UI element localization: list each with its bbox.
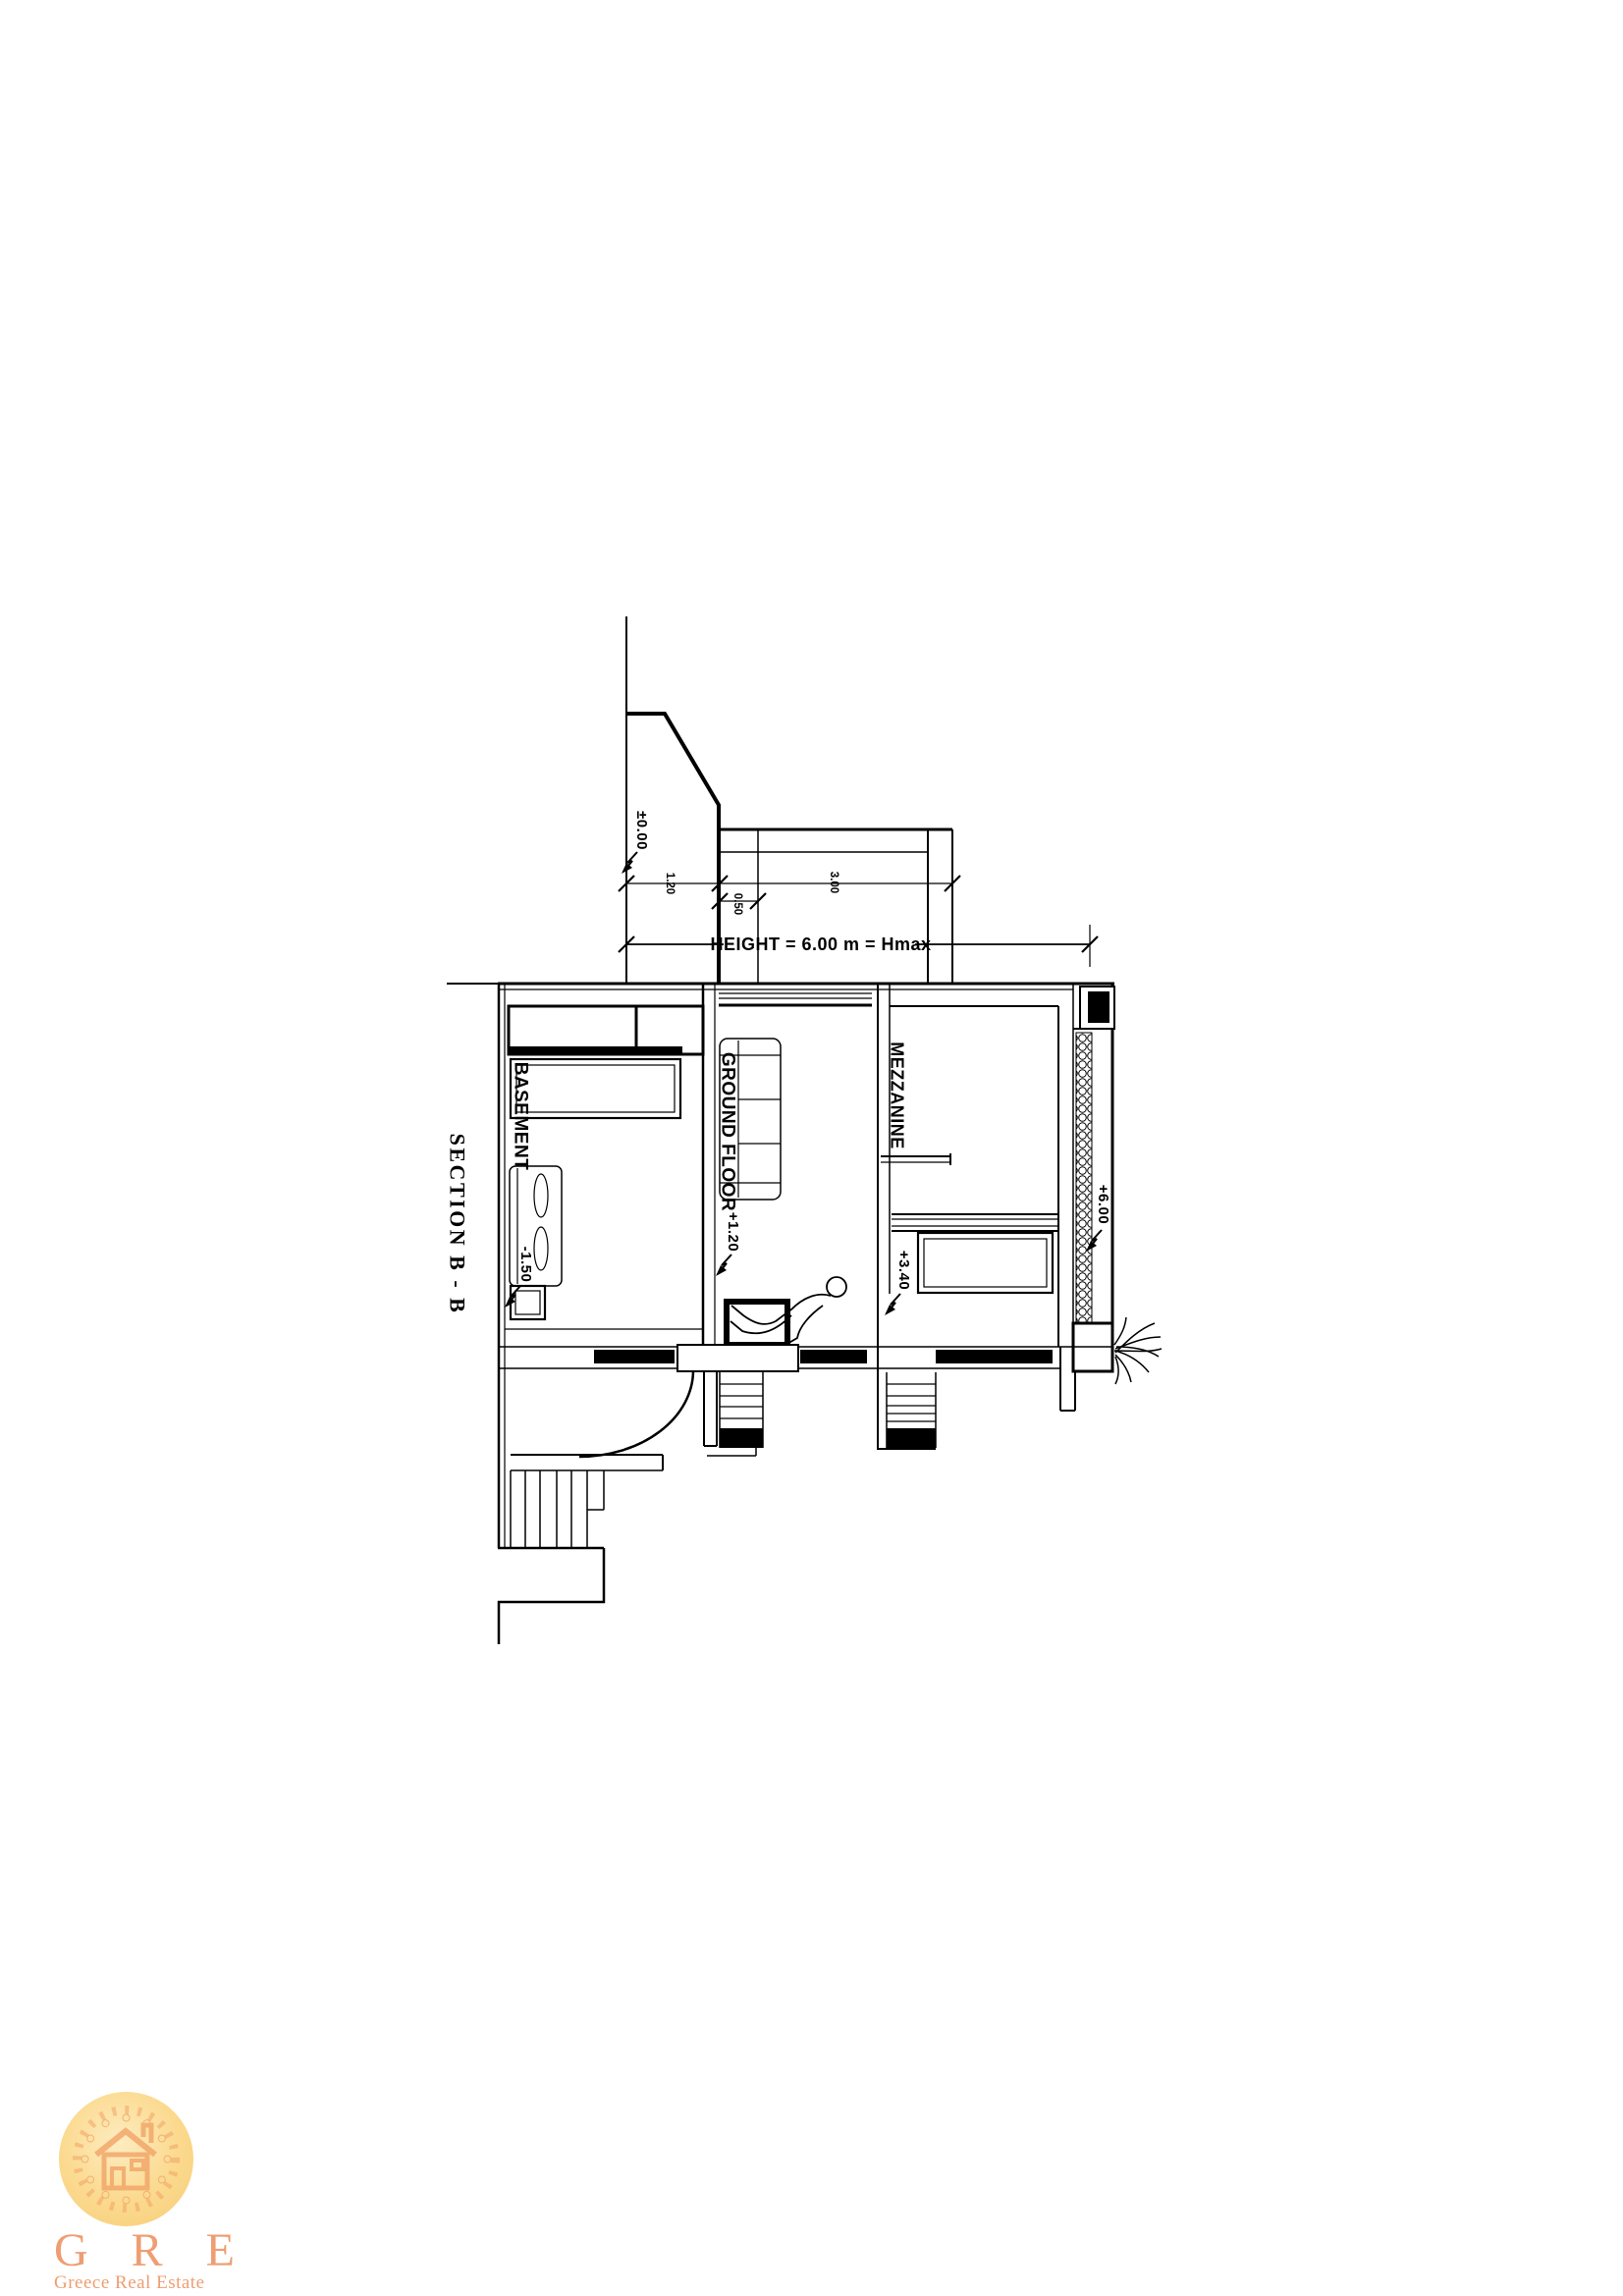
roof-insulation-hatch xyxy=(1076,1033,1092,1323)
basement-window xyxy=(511,1059,680,1118)
logo-company: Greece Real Estate xyxy=(54,2272,221,2294)
level-datum: ±0.00 xyxy=(633,811,650,850)
level-markers xyxy=(505,852,1102,1315)
label-ground-floor: GROUND FLOOR xyxy=(717,1052,737,1211)
chimney-block xyxy=(1088,991,1109,1023)
stair-flight-1 xyxy=(707,1372,763,1456)
dim-3-00: 3.00 xyxy=(828,872,839,893)
facade-wall-band xyxy=(500,1345,1112,1371)
ground-floor-room xyxy=(720,1039,846,1345)
stairwell-box xyxy=(677,1345,798,1371)
dim-height-note: HEIGHT = 6.00 m = Hmax xyxy=(710,934,931,954)
building-outline xyxy=(498,984,1114,1548)
level-roof: +6.00 xyxy=(1095,1185,1111,1224)
parapet-outline xyxy=(720,829,952,984)
retaining-wall-profile xyxy=(499,1548,604,1644)
logo: G R E Greece Real Estate xyxy=(54,2092,221,2294)
stair-flight-2 xyxy=(877,1372,936,1449)
dim-0-50: 0.50 xyxy=(731,893,743,915)
level-basement: -1.50 xyxy=(517,1247,534,1283)
drawing-sheet: BASEMENT GROUND FLOOR MEZZANINE ±0.00 -1… xyxy=(0,0,1623,2296)
plant xyxy=(1114,1317,1162,1384)
logo-sun-house-icon xyxy=(59,2092,193,2226)
logo-initials: G R E xyxy=(54,2229,221,2272)
railing xyxy=(881,1153,950,1165)
exterior-stair xyxy=(498,1455,663,1644)
level-mezzanine: +3.40 xyxy=(895,1251,912,1290)
label-mezzanine: MEZZANINE xyxy=(888,1041,907,1149)
page-title: SECTION B - B xyxy=(445,1134,469,1315)
level-ground-floor: +1.20 xyxy=(725,1212,741,1252)
section-drawing: BASEMENT GROUND FLOOR MEZZANINE ±0.00 -1… xyxy=(0,0,1623,2296)
label-basement: BASEMENT xyxy=(510,1062,530,1171)
mezzanine-bed xyxy=(918,1233,1053,1293)
door-swing-arc xyxy=(579,1370,693,1457)
dim-1-20: 1.20 xyxy=(664,873,676,894)
mezzanine-floor-slab xyxy=(892,1214,1058,1231)
logo-badge xyxy=(59,2092,193,2226)
terrain-profile xyxy=(447,616,719,984)
